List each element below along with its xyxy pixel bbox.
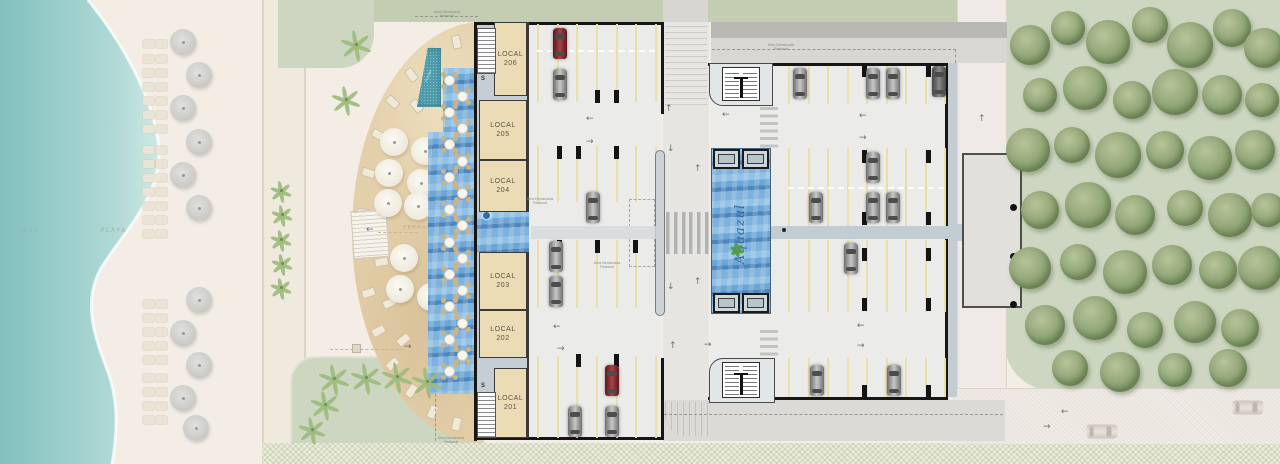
tree [1167, 22, 1213, 68]
beach-lounger [156, 83, 167, 91]
cafe-table [445, 367, 454, 376]
beach-lounger [156, 388, 167, 396]
tree [1100, 352, 1140, 392]
beach-lounger [143, 388, 154, 396]
tree [1235, 130, 1275, 170]
stall-line [827, 358, 829, 397]
tree [1113, 81, 1151, 119]
car [844, 243, 858, 274]
sea-label: MAR [22, 228, 40, 234]
stall-divider [926, 298, 931, 311]
beach-lounger [143, 188, 154, 196]
stall-line [886, 240, 888, 312]
beach-lounger [156, 146, 167, 154]
tree [1174, 301, 1216, 343]
cafe-table [458, 189, 467, 198]
beach-lounger [143, 402, 154, 410]
beach-lounger [156, 416, 167, 424]
entry-driveway [663, 0, 708, 22]
beach-lounger [156, 188, 167, 196]
beach-lounger [156, 69, 167, 77]
tree [1021, 191, 1059, 229]
stall-divider [614, 146, 619, 159]
beach-lounger [156, 111, 167, 119]
tree [1103, 250, 1147, 294]
local-room: LOCAL205 [479, 100, 527, 160]
crosswalk-ladder-top [760, 107, 778, 149]
floor-arrow: ↑ [669, 342, 679, 352]
tree [1209, 349, 1247, 387]
stairs-label-top: S [481, 76, 489, 84]
cafe-table [458, 157, 467, 166]
beach-lounger [156, 202, 167, 210]
stall-divider [595, 240, 600, 253]
stall-line [847, 358, 849, 397]
car [553, 28, 567, 59]
car [866, 192, 880, 223]
stall-line [616, 240, 618, 308]
cafe-table [445, 335, 454, 344]
floor-arrow: ← [1061, 408, 1071, 418]
local-room: LOCAL203 [479, 252, 527, 310]
cafe-table [458, 92, 467, 101]
path-dash [330, 349, 404, 350]
boundary-dash [435, 394, 436, 441]
beach-lounger [143, 356, 154, 364]
tree [1023, 78, 1057, 112]
beach-umbrella [170, 95, 196, 121]
beach-umbrella [170, 320, 196, 346]
stall-divider [862, 248, 867, 261]
tree [1238, 246, 1280, 290]
cafe-table [445, 238, 454, 247]
stall-line [847, 66, 849, 104]
stall-line [808, 66, 810, 104]
stall-line [635, 356, 637, 438]
outdoor-drive-bottom [663, 400, 1005, 441]
exit-ramp-hatch [665, 402, 709, 436]
palm-tree [271, 203, 293, 225]
beach-umbrella [186, 195, 212, 221]
local-room: LOCAL201 [494, 368, 527, 438]
tree [1221, 309, 1259, 347]
car [568, 406, 582, 437]
floor-arrow: ← [722, 111, 732, 121]
stall-line [905, 66, 907, 104]
beach-lounger [143, 125, 154, 133]
beach-lounger [143, 146, 154, 154]
beach-lounger [156, 300, 167, 308]
stall-divider [614, 90, 619, 103]
beach-lounger [156, 160, 167, 168]
annotation: Área DemarcadaPeatonal [766, 44, 796, 49]
stall-line [635, 24, 637, 102]
tree [1025, 305, 1065, 345]
tree [1054, 127, 1090, 163]
tree [1244, 28, 1280, 68]
beach-lounger [143, 216, 154, 224]
beach-lounger [143, 97, 154, 105]
floor-arrow: → [1043, 423, 1053, 433]
cafe-table [458, 319, 467, 328]
stall-line [576, 240, 578, 308]
stall-divider [576, 146, 581, 159]
column-dot [1010, 204, 1017, 211]
palm-tree [311, 390, 339, 418]
annotation: Área DemarcadaPeatonal [525, 198, 555, 203]
beach-lounger [143, 202, 154, 210]
beach-lounger [156, 356, 167, 364]
beach-umbrella [170, 162, 196, 188]
stall-line [944, 358, 946, 397]
stall-line [537, 240, 539, 308]
palm-tree [351, 362, 381, 392]
tree [1127, 312, 1163, 348]
beach-lounger [143, 160, 154, 168]
palm-tree [332, 85, 360, 113]
hatch-strip-bottom [262, 443, 1280, 464]
cafe-table [458, 124, 467, 133]
beach-lounger [143, 69, 154, 77]
beach-lounger [143, 328, 154, 336]
tree [1158, 353, 1192, 387]
palm-tree [270, 276, 292, 298]
lawn-top-strip [278, 0, 957, 22]
tree [1065, 182, 1111, 228]
stall-line [905, 358, 907, 397]
entry-ramp-hatch [665, 26, 707, 108]
tree [1167, 190, 1203, 226]
floor-arrow: ↑ [694, 165, 704, 175]
stairs-label-bottom: S [481, 383, 489, 391]
terrace-umbrella [374, 189, 402, 217]
stall-line [827, 66, 829, 104]
car [586, 192, 600, 223]
annotation: Área DemarcadaPeatonal [436, 437, 466, 442]
stall-divider [926, 212, 931, 225]
crosswalk-center [666, 212, 686, 254]
tree [1245, 83, 1279, 117]
fountain-icon [483, 212, 490, 219]
stall-line [576, 24, 578, 102]
beach-umbrella [170, 385, 196, 411]
palm-tree [382, 361, 412, 391]
floor-arrow: → [704, 341, 714, 351]
crosswalk-ladder-bottom [760, 330, 778, 359]
tree [1051, 11, 1085, 45]
palm-tree [270, 228, 292, 250]
beach-lounger [156, 402, 167, 410]
palm-tree [731, 242, 744, 255]
local-room: LOCAL202 [479, 310, 527, 358]
walkway-right [771, 226, 948, 239]
floor-arrow: ↓ [667, 145, 677, 155]
local-label: LOCAL205 [480, 121, 526, 140]
column-dot [1010, 301, 1017, 308]
stall-divider [926, 385, 931, 398]
beach-umbrella [186, 352, 212, 378]
dropoff-slab [962, 153, 1022, 308]
cafe-table [458, 254, 467, 263]
tree [1052, 350, 1088, 386]
stall-divider [595, 90, 600, 103]
stall-divider [862, 385, 867, 398]
floor-arrow: ← [857, 322, 867, 332]
cafe-table [458, 221, 467, 230]
tree [1251, 193, 1280, 227]
car [1087, 424, 1118, 438]
stall-divider [862, 298, 867, 311]
beach-lounger [156, 55, 167, 63]
tree [1199, 251, 1237, 289]
tree [1146, 131, 1184, 169]
outdoor-drive-top-shadow [711, 22, 1007, 38]
path-marker [352, 344, 361, 353]
brand-logo-text: Aquazul [733, 164, 749, 304]
road-center-dash [664, 414, 1003, 415]
car [809, 192, 823, 223]
car [866, 152, 880, 183]
cafe-table [445, 173, 454, 182]
stall-line [655, 356, 657, 438]
stall-line [557, 356, 559, 438]
beach-lounger [143, 174, 154, 182]
boundary-dash-corner [955, 49, 956, 63]
local-label: LOCAL202 [480, 325, 526, 344]
stall-line [905, 240, 907, 312]
beach-lounger [143, 416, 154, 424]
site-plan-canvas: MAR PLAYA PISCINATERRAZALOCAL206LOCAL205… [0, 0, 1280, 464]
car [605, 406, 619, 437]
beach-lounger [143, 111, 154, 119]
stall-divider [926, 64, 931, 77]
wall-entry-left [661, 22, 664, 114]
tree [1202, 75, 1242, 115]
car [1233, 400, 1264, 414]
beach-lounger [156, 216, 167, 224]
car [866, 68, 880, 99]
tree [1208, 193, 1252, 237]
floor-arrow: ↓ [667, 283, 677, 293]
floor-arrow: ↑ [978, 115, 988, 125]
car [886, 68, 900, 99]
path-dash [378, 232, 418, 233]
crosswalk-center [689, 212, 709, 254]
tree [1073, 296, 1117, 340]
palm-tree [270, 179, 292, 201]
beach-lounger [156, 230, 167, 238]
beach-lounger [143, 314, 154, 322]
car [887, 365, 901, 396]
beach-lounger [143, 374, 154, 382]
floor-arrow: ← [586, 115, 596, 125]
stall-line [655, 24, 657, 102]
beach-umbrella [186, 287, 212, 313]
wall-exit-left [661, 358, 664, 440]
terrace-umbrella [390, 244, 418, 272]
beach-lounger [143, 300, 154, 308]
stairwell-core [722, 67, 760, 101]
beach-lounger [156, 125, 167, 133]
local-label: LOCAL204 [480, 177, 526, 196]
beach-label: PLAYA [100, 228, 127, 234]
floor-arrow: → [404, 343, 414, 353]
terrace-umbrella [380, 128, 408, 156]
stall-line [635, 146, 637, 202]
car [932, 66, 946, 97]
stairwell-locals-bottom [477, 392, 496, 438]
beach-lounger [143, 40, 154, 48]
stall-divider [576, 354, 581, 367]
stall-line [827, 240, 829, 312]
cafe-table [445, 205, 454, 214]
stairwell-core [722, 362, 760, 398]
boundary-dash [712, 49, 956, 50]
stall-line [788, 66, 790, 104]
annotation: Área DemarcadaPeatonal [432, 11, 462, 16]
cafe-table [445, 108, 454, 117]
floor-arrow: ← [553, 323, 563, 333]
beach-lounger [143, 83, 154, 91]
cafe-table [458, 351, 467, 360]
stall-line [537, 146, 539, 202]
tree [1115, 195, 1155, 235]
palm-tree [319, 363, 349, 393]
car [553, 69, 567, 100]
tree [1063, 66, 1107, 110]
beach-lounger [156, 374, 167, 382]
wave-terrace-lower [428, 132, 480, 394]
divider-wall [655, 150, 665, 316]
beach-lounger [156, 342, 167, 350]
floor-arrow: → [557, 345, 567, 355]
stall-line [788, 240, 790, 312]
beach-lounger [156, 40, 167, 48]
tree [1060, 244, 1096, 280]
local-room: LOCAL206 [494, 22, 527, 96]
floor-arrow: ← [859, 112, 869, 122]
car [810, 365, 824, 396]
car [549, 241, 563, 272]
beach-lounger [156, 174, 167, 182]
palm-tree [299, 416, 325, 442]
annotation: Área DemarcadaPeatonal [592, 262, 622, 267]
cafe-table [445, 302, 454, 311]
walkway-left [531, 226, 655, 239]
stall-divider [926, 248, 931, 261]
beach-umbrella [183, 415, 209, 441]
beach-lounger [156, 328, 167, 336]
cafe-table [445, 140, 454, 149]
tree [1086, 20, 1130, 64]
stall-line [808, 240, 810, 312]
stall-divider [557, 146, 562, 159]
beach-umbrella [186, 129, 212, 155]
car [605, 365, 619, 396]
floor-arrow: ← [366, 226, 376, 236]
beach-lounger [156, 97, 167, 105]
floor-arrow: ↑ [665, 105, 675, 115]
terrace-umbrella [375, 159, 403, 187]
floor-arrow: → [857, 342, 867, 352]
stall-line [537, 24, 539, 102]
floor-arrow: → [586, 138, 596, 148]
tree [1010, 25, 1050, 65]
local-label: LOCAL201 [495, 394, 526, 413]
beach-lounger [143, 342, 154, 350]
tree [1152, 245, 1192, 285]
beach-umbrella [170, 29, 196, 55]
floor-arrow: → [859, 134, 869, 144]
tree [1132, 7, 1168, 43]
cafe-table [445, 76, 454, 85]
local-room: LOCAL204 [479, 160, 527, 212]
palm-tree [271, 252, 293, 274]
person-icon [782, 228, 786, 232]
beach-umbrella [186, 62, 212, 88]
cafe-table [445, 270, 454, 279]
stall-divider [926, 150, 931, 163]
tree [1152, 69, 1198, 115]
palm-tree [412, 366, 442, 396]
stairwell-locals-top [477, 28, 496, 74]
floor-arrow: ↑ [694, 278, 704, 288]
local-label: LOCAL203 [480, 272, 526, 291]
stall-line [596, 356, 598, 438]
car [549, 276, 563, 307]
tree [1006, 128, 1050, 172]
beach-lounger [156, 314, 167, 322]
tree [1009, 247, 1051, 289]
beach-lounger [143, 230, 154, 238]
car [793, 68, 807, 99]
terrace-umbrella [386, 275, 414, 303]
palm-tree [341, 29, 371, 59]
stall-line [944, 240, 946, 312]
tree [1188, 136, 1232, 180]
stall-line [944, 148, 946, 226]
cafe-table [458, 286, 467, 295]
stall-line [788, 358, 790, 397]
lane-dash [788, 187, 944, 189]
tree [1095, 132, 1141, 178]
local-label: LOCAL206 [495, 50, 526, 69]
stall-line [537, 356, 539, 438]
beach-lounger [143, 55, 154, 63]
car [886, 192, 900, 223]
